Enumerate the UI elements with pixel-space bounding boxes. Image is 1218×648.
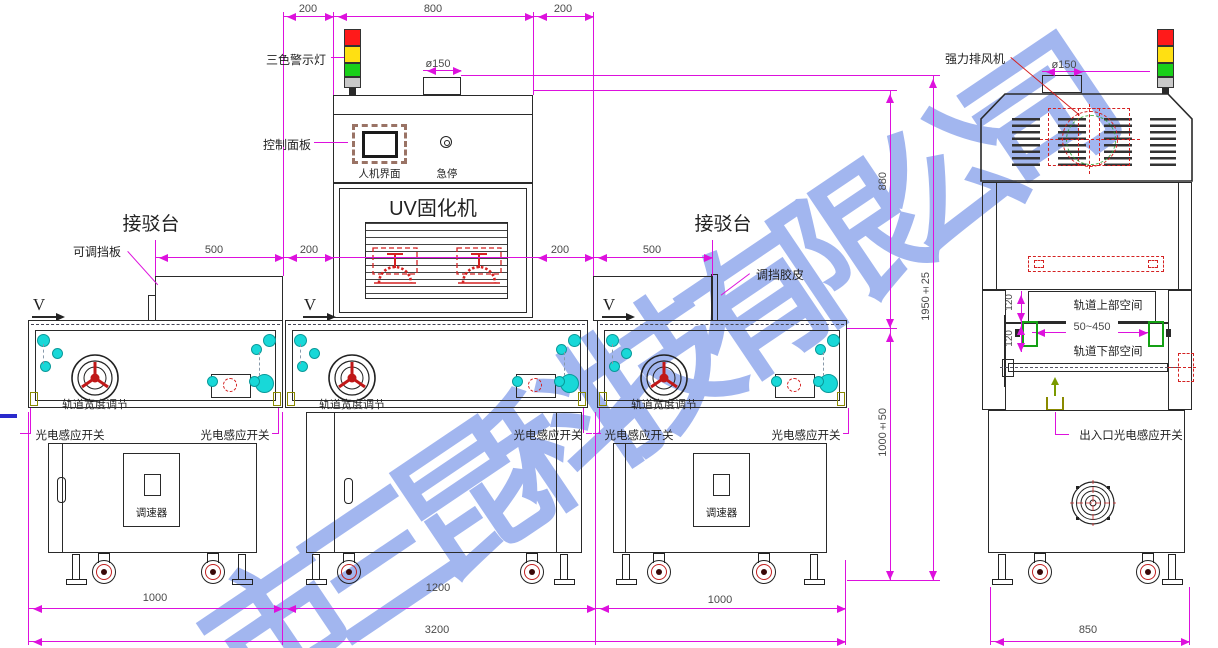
warning-light-red — [1157, 29, 1174, 46]
photo-sensor-label: 光电感应开关 — [602, 427, 676, 443]
docking-table-left — [155, 276, 283, 321]
photo-sensor-bracket — [599, 392, 607, 406]
dim-arrow — [886, 90, 894, 103]
leader-line — [599, 408, 600, 433]
hmi-label: 人机界面 — [352, 166, 407, 181]
motor-pulley-icon — [771, 376, 782, 387]
screw-centerline — [1000, 367, 1178, 368]
adjustable-baffle-label: 可调挡板 — [66, 243, 128, 260]
leader-line — [331, 57, 344, 58]
photo-sensor-bracket — [578, 392, 586, 406]
belt-idler-icon — [40, 361, 51, 372]
dim-arrow — [585, 13, 598, 21]
dim-arrow — [929, 571, 937, 584]
engineering-drawing: 市三昆科技有限公司 200 800 200 三色警示灯 ø150 人机界面 急停… — [0, 0, 1218, 648]
uv-machine-title: UV固化机 — [377, 192, 489, 221]
speed-controller-label: 调速器 — [123, 505, 180, 520]
photo-sensor-bracket — [287, 392, 295, 406]
dim-arrow — [1017, 291, 1025, 304]
dim-platform-left: 500 — [191, 244, 237, 256]
leveling-foot — [238, 554, 246, 580]
leader-line — [314, 142, 348, 143]
photo-sensor-bracket — [30, 392, 38, 406]
frame-column-line — [1178, 182, 1179, 290]
estop-button[interactable] — [440, 136, 452, 148]
belt-roller-icon — [568, 334, 581, 347]
caster-wheel — [647, 560, 671, 584]
caster-wheel — [201, 560, 225, 584]
panel-divider — [333, 114, 533, 115]
dim-arrow — [283, 605, 296, 613]
control-panel-label: 控制面板 — [258, 136, 316, 153]
caster-wheel — [520, 560, 544, 584]
dim-gap-left: 200 — [286, 244, 332, 256]
warning-light-pole — [349, 88, 356, 95]
dim-bottom-total: 3200 — [414, 624, 460, 636]
tunnel-wall-left — [982, 290, 1006, 410]
photo-sensor-label: 光电感应开关 — [769, 427, 843, 443]
tunnel-wall-right — [1168, 290, 1192, 410]
dim-height-table: 1000±50 — [877, 408, 889, 457]
motor-pulley-icon — [207, 376, 218, 387]
dim-top-left: 200 — [285, 3, 331, 15]
motor-pulley-icon — [249, 376, 260, 387]
leader-line — [272, 433, 279, 434]
rail-width-label: 轨道宽度调节 — [40, 396, 150, 412]
dim-arrow — [1017, 322, 1025, 335]
leveling-foot — [622, 554, 630, 580]
belt-idler-icon — [297, 361, 308, 372]
leveling-foot — [72, 554, 80, 580]
leader-line — [20, 433, 31, 434]
belt-idler-icon — [52, 348, 63, 359]
dim-arrow — [29, 638, 42, 646]
motor-detail — [528, 378, 542, 392]
conveyor-centerline — [31, 324, 280, 325]
dim-arrow — [594, 254, 607, 262]
direction-mark: V — [301, 295, 319, 315]
frame-column-line — [996, 182, 997, 290]
dim-arrow — [929, 75, 937, 88]
motor-pulley-icon — [813, 376, 824, 387]
adjustable-baffle-plate — [148, 295, 156, 321]
dim-height-total: 1950±25 — [920, 272, 932, 321]
cooling-fan-grille — [1070, 480, 1116, 526]
belt-path — [612, 344, 613, 364]
dim-arrow — [704, 254, 717, 262]
fan-blade-circle — [1066, 115, 1116, 165]
conveyor-centerline — [600, 324, 844, 325]
extension-line — [533, 90, 897, 91]
direction-mark: V — [600, 295, 618, 315]
fan-centerline — [1089, 104, 1090, 174]
extension-line — [845, 560, 846, 645]
uv-lamp-end-mark — [1034, 260, 1044, 268]
belt-path — [300, 344, 301, 364]
photo-sensor-bracket — [273, 392, 281, 406]
belt-path — [259, 352, 260, 376]
door-handle[interactable] — [57, 477, 66, 503]
photo-sensor-label: 光电感应开关 — [198, 427, 272, 443]
cabinet-door-line — [556, 412, 557, 553]
docking-label-left: 接驳台 — [118, 209, 184, 236]
dim-arrow — [886, 329, 894, 342]
dim-line — [155, 257, 593, 258]
belt-idler-icon — [621, 348, 632, 359]
belt-idler-icon — [815, 344, 826, 355]
belt-idler-icon — [556, 344, 567, 355]
sensor-arrow-head — [1051, 373, 1059, 385]
belt-path — [564, 352, 565, 376]
vent-louver — [1150, 118, 1176, 166]
dim-line — [28, 608, 846, 609]
speed-controller-dial[interactable] — [713, 474, 730, 496]
dim-height-upper: 880 — [877, 172, 889, 190]
dim-line — [1042, 71, 1150, 72]
dim-arrow — [837, 638, 850, 646]
leader-line — [278, 408, 279, 433]
dim-side-width: 850 — [1068, 624, 1108, 636]
dim-rail-upper: 120 — [1004, 294, 1015, 311]
baffle-rubber-label: 调挡胶皮 — [750, 266, 810, 283]
cabinet-door-line — [334, 412, 335, 553]
dim-gap-right: 200 — [537, 244, 583, 256]
leader-line — [586, 433, 592, 434]
docking-label-right: 接驳台 — [690, 209, 756, 236]
rail-width-label: 轨道宽度调节 — [609, 396, 719, 412]
dim-line — [593, 257, 712, 258]
dim-arrow — [155, 254, 168, 262]
dim-arrow — [837, 605, 850, 613]
extension-line — [533, 12, 534, 95]
exhaust-duct-front — [423, 77, 461, 95]
dim-line — [933, 75, 934, 580]
dim-arrow — [596, 605, 609, 613]
direction-arrow — [602, 316, 628, 318]
extension-line — [461, 75, 940, 76]
rail-upper-space-label: 轨道上部空间 — [1062, 297, 1154, 313]
leveling-foot — [998, 554, 1006, 580]
photo-sensor-bracket — [837, 392, 845, 406]
warning-light-base — [344, 77, 361, 88]
dim-top-right: 200 — [540, 3, 586, 15]
warning-light-red — [344, 29, 361, 46]
leader-line — [848, 408, 849, 433]
motor-detail — [787, 378, 801, 392]
dim-bottom-middle: 1200 — [415, 582, 461, 594]
caster-wheel — [1136, 560, 1160, 584]
exhaust-fan-label: 强力排风机 — [937, 50, 1013, 67]
drawing-layer: 200 800 200 三色警示灯 ø150 人机界面 急停 控制面板 UV固化… — [0, 0, 1218, 648]
baffle-rubber-plate — [711, 274, 718, 321]
leader-line — [30, 408, 31, 433]
dim-chimney-front: ø150 — [418, 58, 458, 70]
extension-line — [990, 587, 991, 645]
caster-wheel — [337, 560, 361, 584]
motor-detail — [223, 378, 237, 392]
vent-louver — [1012, 118, 1040, 166]
warning-light-yellow — [344, 46, 361, 63]
leveling-foot — [1168, 554, 1176, 580]
speed-controller-dial[interactable] — [144, 474, 161, 496]
motor-pulley-icon — [554, 376, 565, 387]
rail-width-label: 轨道宽度调节 — [297, 396, 407, 412]
dim-arrow — [991, 638, 1004, 646]
leveling-foot — [312, 554, 320, 580]
screw-handwheel-axis — [1168, 367, 1196, 368]
caster-wheel — [752, 560, 776, 584]
dim-bottom-right: 1000 — [697, 594, 743, 606]
dim-top-center: 800 — [410, 3, 456, 15]
uv-lamp-side-dashed — [1028, 256, 1164, 272]
photo-sensor-label: 光电感应开关 — [33, 427, 107, 443]
leader-line — [721, 273, 750, 295]
leader-line — [127, 251, 158, 285]
bracket-bolt — [1166, 329, 1171, 337]
dim-platform-right: 500 — [629, 244, 675, 256]
dim-arrow — [29, 605, 42, 613]
rail-lower-space-label: 轨道下部空间 — [1062, 343, 1154, 359]
conveyor-centerline — [288, 324, 585, 325]
door-handle[interactable] — [344, 478, 353, 504]
warning-light-base — [1157, 77, 1174, 88]
direction-arrow — [32, 316, 58, 318]
belt-idler-icon — [609, 361, 620, 372]
dim-bottom-left: 1000 — [132, 592, 178, 604]
dim-arrow — [1017, 343, 1025, 356]
belt-idler-icon — [309, 348, 320, 359]
warning-light-green — [344, 63, 361, 77]
belt-path — [43, 344, 44, 364]
dim-arrow — [334, 13, 347, 21]
leveling-foot — [810, 554, 818, 580]
direction-mark: V — [30, 295, 48, 315]
dim-arrow — [1181, 638, 1194, 646]
belt-path — [823, 352, 824, 376]
exhaust-duct-side — [1042, 75, 1082, 93]
extension-line — [593, 12, 594, 276]
entrance-sensor-bracket — [1046, 397, 1064, 411]
motor-pulley-icon — [512, 376, 523, 387]
dim-line — [28, 641, 846, 642]
cabinet-door-line — [625, 443, 626, 553]
belt-roller-icon — [827, 334, 840, 347]
uv-lamp-icon — [371, 246, 419, 288]
dim-arrow — [886, 571, 894, 584]
caster-wheel — [92, 560, 116, 584]
direction-arrow — [303, 316, 329, 318]
speed-controller-label: 调速器 — [693, 505, 750, 520]
extension-line — [333, 12, 334, 95]
dim-line — [990, 641, 1190, 642]
uv-lamp-end-mark — [1148, 260, 1158, 268]
uv-lamp-icon — [455, 246, 503, 288]
extension-line — [1189, 587, 1190, 645]
estop-button-inner — [444, 140, 450, 146]
belt-roller-icon — [263, 334, 276, 347]
warning-light-yellow — [1157, 46, 1174, 63]
leveling-foot — [560, 554, 568, 580]
dim-chimney-side: ø150 — [1044, 59, 1084, 71]
dim-rail-range: 50~450 — [1066, 321, 1118, 333]
caster-wheel — [1028, 560, 1052, 584]
leader-line — [843, 433, 849, 434]
estop-label: 急停 — [434, 166, 460, 181]
hmi-screen[interactable] — [362, 131, 398, 158]
belt-idler-icon — [251, 344, 262, 355]
fan-centerline — [1040, 139, 1140, 140]
warning-light-green — [1157, 63, 1174, 77]
machine-mid-section — [982, 182, 1192, 290]
warning-light-label: 三色警示灯 — [260, 51, 332, 68]
